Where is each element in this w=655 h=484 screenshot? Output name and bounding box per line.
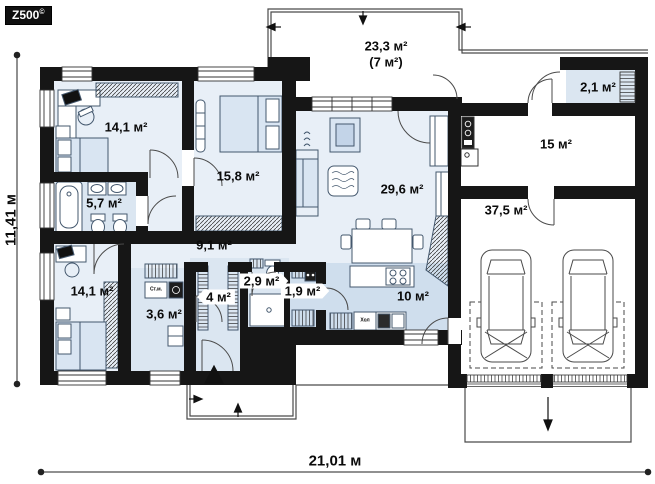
- brand-logo-text: Z500: [12, 8, 39, 22]
- room-label-vestibule: 2,1 м²: [580, 81, 616, 94]
- room-label-utility: 15 м²: [540, 138, 572, 151]
- room-label-kitchen: 10 м²: [397, 290, 429, 303]
- room-label-bedroom-1: 14,1 м²: [105, 121, 148, 134]
- floor-plan-page: Z500© 23,3 м² (7 м²) 14,1 м² 15,8 м² 5,7…: [0, 0, 655, 484]
- width-dimension-label: 21,01 м: [309, 454, 362, 469]
- height-dimension-label: 11,41 м: [4, 194, 19, 246]
- room-label-hallway: 9,1 м²: [196, 239, 232, 252]
- copyright-icon: ©: [39, 9, 44, 16]
- room-label-living: 29,6 м²: [381, 183, 424, 196]
- room-label-pantry: 1,9 м²: [281, 284, 330, 299]
- car-1: [477, 250, 535, 362]
- room-label-garage: 37,5 м²: [485, 204, 528, 217]
- fridge-label: Хол: [360, 319, 369, 324]
- room-label-bedroom-2: 15,8 м²: [217, 170, 260, 183]
- room-label-bathroom-1: 5,7 м²: [86, 197, 122, 210]
- brand-logo: Z500©: [5, 6, 52, 25]
- room-label-terrace: 23,3 м²: [365, 40, 408, 53]
- room-label-laundry: 3,6 м²: [146, 308, 182, 321]
- car-2: [559, 250, 617, 362]
- room-label-bedroom-3: 14,1 м²: [71, 285, 114, 298]
- porch-outline: [187, 385, 465, 419]
- room-label-terrace-sub: (7 м²): [369, 56, 402, 69]
- room-label-wardrobe: 4 м²: [197, 290, 235, 305]
- floor-plan-drawing: [0, 0, 655, 484]
- washer-label: Ст.м.: [150, 288, 162, 293]
